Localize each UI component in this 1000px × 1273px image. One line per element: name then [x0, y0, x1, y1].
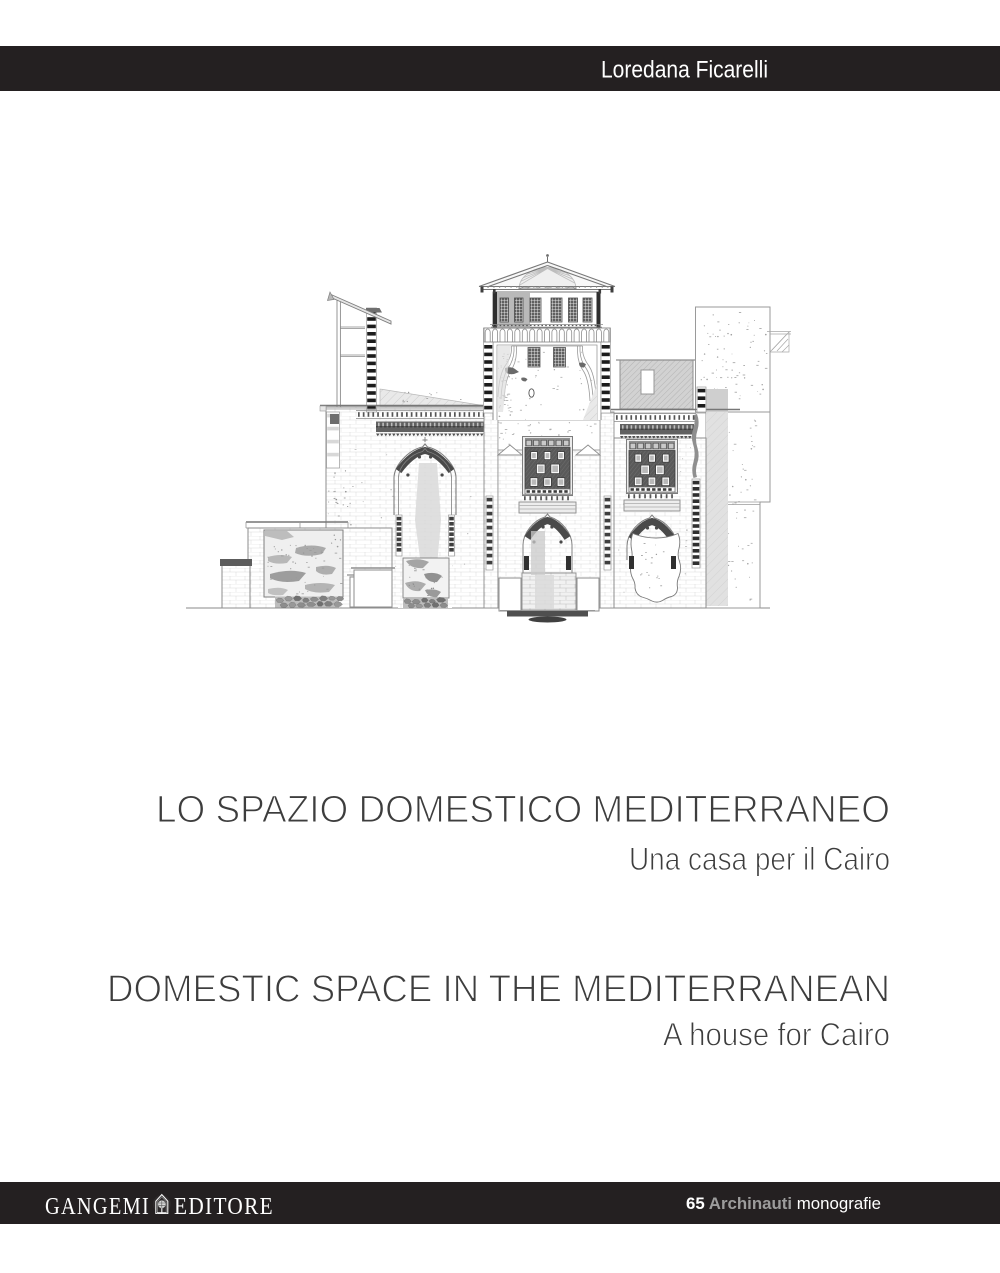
svg-text:LO SPAZIO DOMESTICO MEDITERRAN: LO SPAZIO DOMESTICO MEDITERRANEO	[156, 789, 890, 831]
svg-text:DOMESTIC SPACE IN THE MEDITERR: DOMESTIC SPACE IN THE MEDITERRANEAN	[107, 969, 890, 1011]
svg-text:A house for Cairo: A house for Cairo	[663, 1017, 890, 1053]
svg-text:GANGEMI: GANGEMI	[45, 1194, 150, 1220]
svg-text:Una casa per il Cairo: Una casa per il Cairo	[629, 841, 890, 877]
svg-text:Loredana Ficarelli: Loredana Ficarelli	[601, 57, 768, 84]
svg-text:65 Archinauti monografie: 65 Archinauti monografie	[686, 1195, 881, 1213]
svg-text:EDITORE: EDITORE	[174, 1194, 274, 1220]
